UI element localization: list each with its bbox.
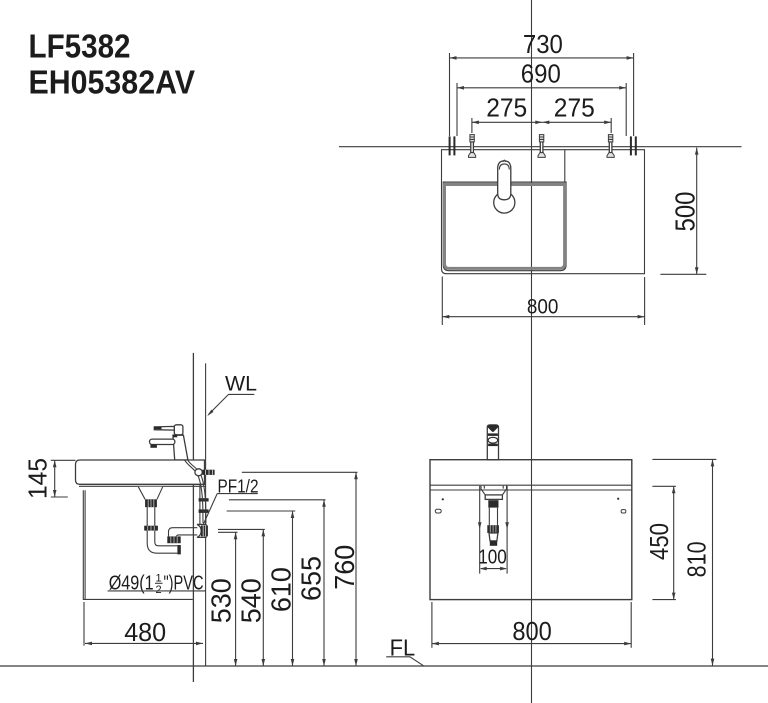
- svg-text:800: 800: [512, 616, 552, 646]
- svg-text:EH05382AV: EH05382AV: [29, 64, 196, 101]
- svg-text:1: 1: [156, 573, 162, 585]
- svg-text:480: 480: [124, 617, 166, 647]
- svg-text:275: 275: [554, 93, 595, 123]
- svg-text:275: 275: [486, 93, 527, 123]
- svg-text:LF5382: LF5382: [29, 27, 131, 64]
- svg-text:800: 800: [527, 296, 559, 319]
- svg-text:655: 655: [295, 556, 326, 601]
- svg-text:610: 610: [265, 567, 296, 612]
- svg-text:760: 760: [329, 545, 360, 590]
- svg-text:530: 530: [206, 578, 237, 623]
- svg-text:100: 100: [478, 547, 507, 569]
- svg-text:500: 500: [669, 192, 700, 232]
- svg-text:540: 540: [236, 578, 267, 623]
- svg-text:690: 690: [521, 58, 561, 88]
- svg-text:WL: WL: [225, 371, 257, 395]
- svg-text:145: 145: [23, 458, 53, 499]
- svg-text:730: 730: [523, 29, 563, 59]
- svg-text:2: 2: [156, 584, 162, 596]
- svg-text:450: 450: [644, 523, 674, 560]
- svg-text:810: 810: [682, 541, 712, 577]
